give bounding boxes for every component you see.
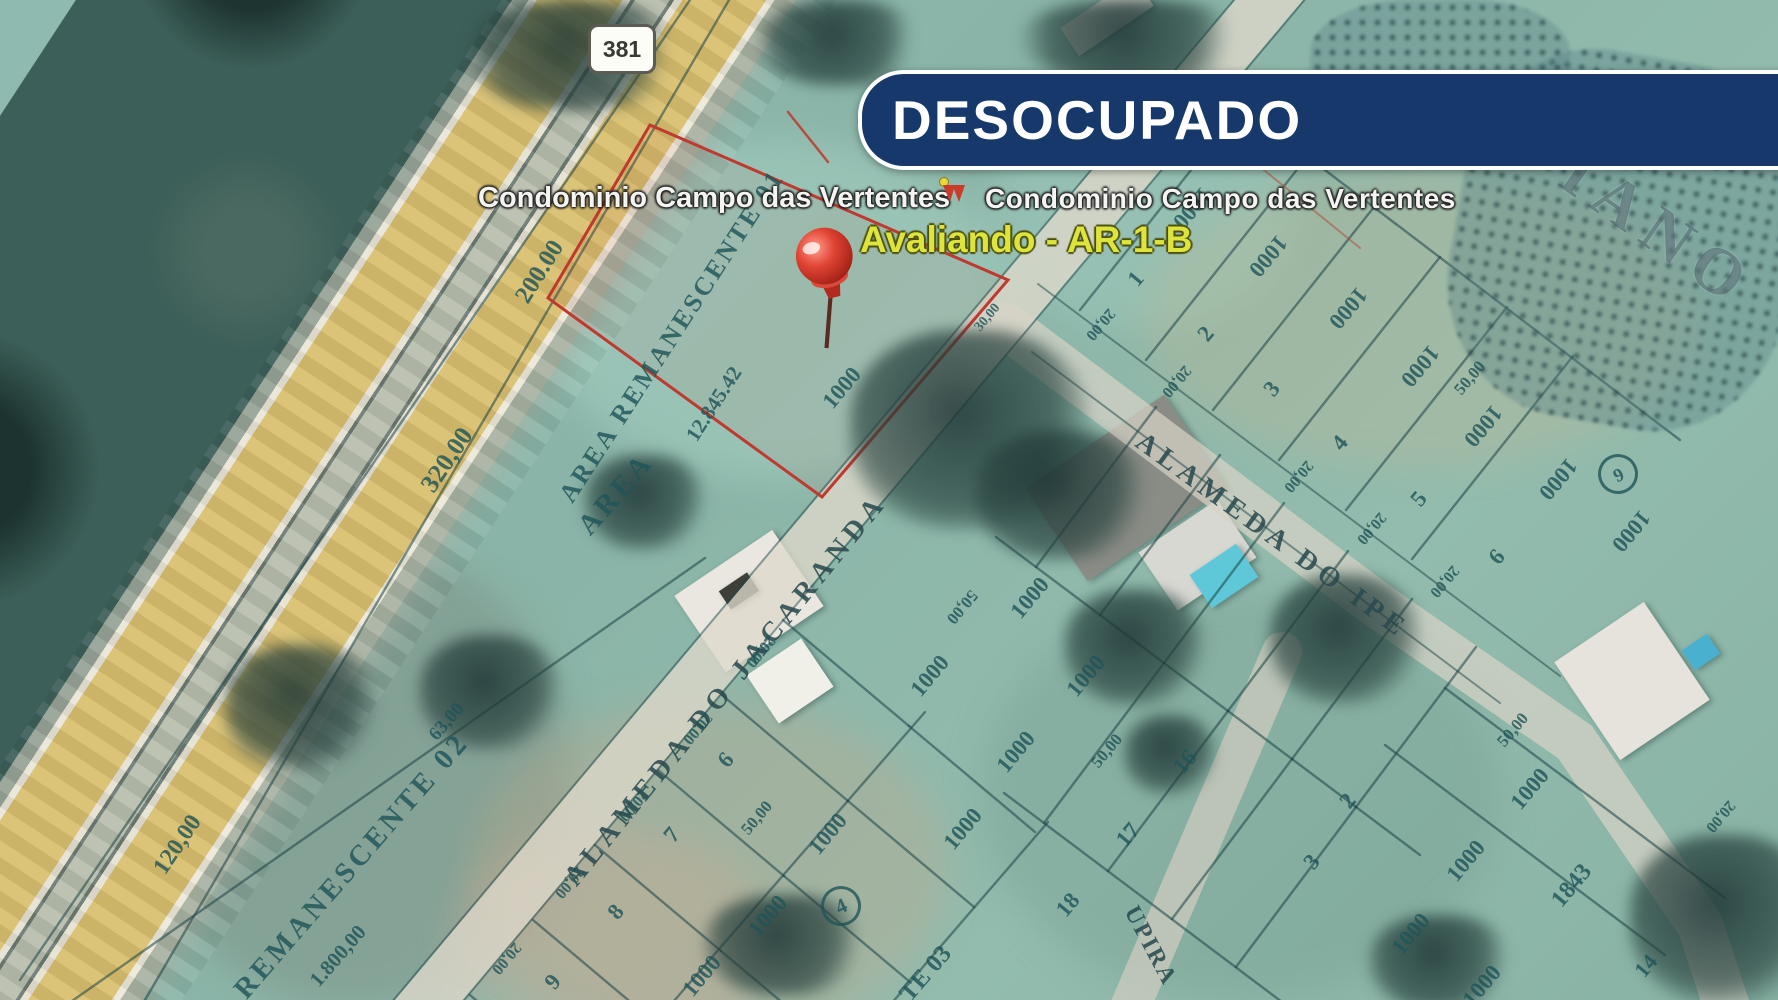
map-text: 3 <box>1258 376 1285 402</box>
map-text: 9 <box>539 969 566 995</box>
map-text: 20,00 <box>488 938 525 977</box>
map-text: 1000 <box>938 803 987 855</box>
road-label: UPIRA <box>1118 902 1182 991</box>
map-text: 50,00 <box>1450 357 1490 399</box>
block-number-badge: 6 <box>1591 447 1644 500</box>
map-text: 1000 <box>1457 960 1506 1000</box>
map-text: 1000 <box>1458 400 1507 452</box>
satellite-map: 200.00AREA REMANESCENTE 0112.845.42320,0… <box>0 0 1778 1000</box>
map-text: 4 <box>1326 430 1353 456</box>
status-banner-label: DESOCUPADO <box>892 88 1302 152</box>
map-text: REMANESCENTE 02 <box>228 726 477 1000</box>
map-text: 20,00 <box>1082 304 1119 343</box>
map-text: 1000 <box>1005 572 1054 624</box>
map-text: 12.845.42 <box>681 362 748 446</box>
map-text: 1000 <box>817 362 866 414</box>
condominio-label-right: Condominio Campo das Vertentes <box>985 183 1456 215</box>
map-text: 1000 <box>1395 340 1444 392</box>
map-text: 200.00 <box>510 235 570 308</box>
map-text: 1000 <box>1061 650 1110 702</box>
subject-parcel-label: Avaliando - AR-1-B <box>860 219 1192 261</box>
map-text: 6 <box>1483 544 1510 570</box>
map-text: 20,00 <box>1158 361 1195 400</box>
map-text: 2 <box>1192 321 1219 347</box>
map-text: 1000 <box>743 890 792 942</box>
map-text: 50,00 <box>1493 709 1533 751</box>
block-number-badge: 4 <box>814 879 867 932</box>
map-text: 1000 <box>1606 505 1655 557</box>
map-text: AREA REMANESCENTE 01 <box>553 164 791 508</box>
status-banner: DESOCUPADO <box>858 70 1778 170</box>
map-text: 50,00 <box>1087 730 1127 772</box>
map-text: 1 <box>1122 266 1149 292</box>
map-text: 1000 <box>991 726 1040 778</box>
map-text: 1000 <box>1441 835 1490 887</box>
map-text: 1000 <box>1533 453 1582 505</box>
map-text: 20,00 <box>1702 796 1739 835</box>
map-text: 1000 <box>905 650 954 702</box>
map-text: 30,00 <box>972 301 1005 335</box>
map-text: 3 <box>1298 849 1325 875</box>
condominio-label-left: Condominio Campo das Vertentes <box>478 182 950 215</box>
map-text: 16 <box>1168 745 1203 779</box>
map-text: 6 <box>712 747 739 773</box>
map-text: 1843 <box>1546 859 1598 913</box>
map-text: 20,00 <box>1353 508 1390 547</box>
map-text: 50,00 <box>737 797 777 839</box>
map-text: 7 <box>658 822 685 848</box>
map-text: 1000 <box>1505 763 1554 815</box>
map-text: 1000 <box>1323 282 1372 334</box>
map-text: 120,00 <box>148 810 207 880</box>
map-text: 1000 <box>1386 908 1435 960</box>
map-text: 8 <box>602 899 629 925</box>
route-shield-381: 381 <box>588 24 656 74</box>
map-text: 20,00 <box>1426 561 1463 600</box>
map-text: 320,00 <box>415 422 480 498</box>
map-text: 17 <box>1111 818 1146 852</box>
placemark-icon <box>938 176 966 206</box>
map-text: 50,00 <box>942 586 982 628</box>
map-text: 5 <box>1405 486 1432 512</box>
map-text: 1000 <box>1243 230 1292 282</box>
map-text: 2 <box>1334 788 1361 814</box>
map-text: 1000 <box>677 950 726 1000</box>
map-text: 20,00 <box>1280 456 1317 495</box>
map-text: 1000 <box>803 808 852 860</box>
map-text: TE 03 <box>894 940 958 1000</box>
map-text: 14 <box>1629 949 1663 983</box>
map-text: 18 <box>1051 888 1086 922</box>
